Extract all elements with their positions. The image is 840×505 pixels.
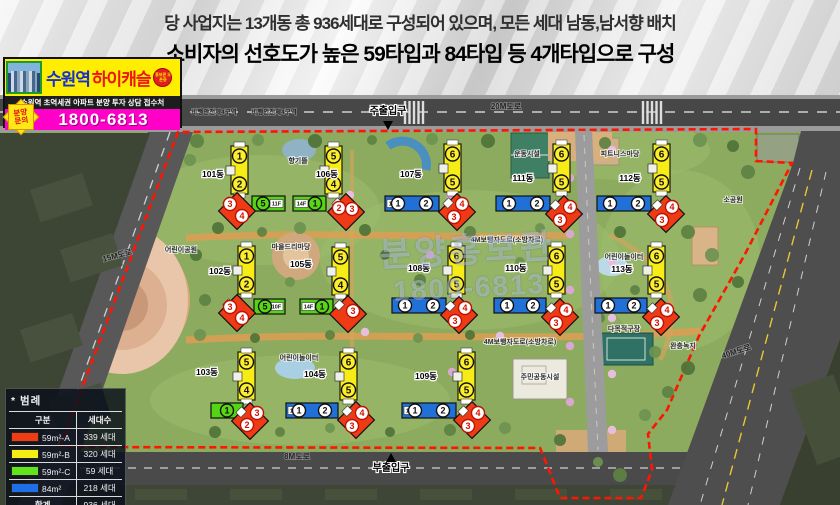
tower-connector — [643, 266, 652, 275]
legend-row: 구분세대수 — [9, 412, 122, 429]
unit-number: 1 — [506, 199, 511, 209]
cherry-tree — [361, 328, 369, 336]
tree — [308, 134, 322, 148]
unit-number: 3 — [349, 204, 354, 214]
floor-label: 11F — [272, 202, 282, 208]
tree — [465, 330, 475, 340]
unit-number: 2 — [322, 406, 327, 416]
facility-label: 소공원 — [723, 195, 742, 204]
tree — [385, 427, 395, 437]
cherry-tree — [566, 286, 574, 294]
unit-number: 5 — [262, 302, 267, 312]
floor-tag — [241, 242, 252, 247]
floor-tag — [343, 348, 354, 353]
unit-number: 4 — [239, 313, 244, 323]
legend-title: * 범례 — [11, 393, 122, 408]
satellite-building — [325, 489, 377, 500]
tree — [681, 225, 695, 239]
tree — [693, 288, 707, 302]
tree — [535, 223, 545, 233]
building-photo — [6, 61, 42, 94]
unit-number: 5 — [454, 280, 460, 291]
unit-number: 3 — [465, 421, 470, 431]
unit-number: 2 — [244, 280, 250, 291]
unit-number: 1 — [296, 406, 301, 416]
floor-tag — [241, 293, 252, 298]
tree — [613, 468, 627, 482]
cherry-tree — [608, 314, 616, 322]
unit-number: 1 — [244, 252, 250, 263]
legend: * 범례 구분세대수59m²-A339 세대59m²-B320 세대59m²-C… — [5, 388, 126, 505]
road-label: 20M도로 — [491, 102, 522, 111]
tree — [359, 224, 371, 236]
floor-tag — [328, 193, 339, 198]
building-label-101동: 101동 — [202, 169, 224, 179]
site-plan-map: 1211F534101동5414F123106동6514F1243107동651… — [0, 95, 840, 505]
legend-row: 84m²218 세대 — [9, 480, 122, 497]
tree — [413, 333, 423, 343]
tree — [199, 294, 211, 306]
unit-number: 3 — [350, 306, 355, 316]
road-label: 비행안전제4구역 — [191, 107, 236, 116]
unit-number: 3 — [349, 421, 354, 431]
legend-row: 59m²-B320 세대 — [9, 446, 122, 463]
unit-number: 6 — [454, 252, 460, 263]
unit-number: 5 — [464, 386, 470, 397]
building-label-111동: 111동 — [512, 173, 533, 183]
building-label-112동: 112동 — [619, 173, 641, 183]
unit-number: 3 — [659, 215, 664, 225]
crosswalk-stripe — [422, 101, 424, 124]
tree — [209, 426, 221, 438]
unit-number: 5 — [659, 178, 665, 189]
unit-number: 6 — [450, 150, 456, 161]
floor-label: 14F — [297, 202, 307, 208]
unit-number: 5 — [346, 386, 352, 397]
tree — [649, 346, 661, 358]
building-label-110동: 110동 — [505, 263, 527, 273]
facility-label: 어린이공원 — [165, 245, 197, 254]
building-label-106동: 106동 — [316, 169, 338, 179]
open-badge: 홍보관 오픈중 — [153, 68, 172, 87]
tree — [294, 222, 306, 234]
floor-label: 10F — [272, 305, 282, 311]
map-canvas: 1211F534101동5414F123106동6514F1243107동651… — [0, 95, 840, 505]
crosswalk-stripe — [655, 101, 657, 124]
crosswalk-stripe — [660, 101, 662, 124]
floor-tag — [335, 243, 346, 248]
crosswalk-stripe — [646, 101, 648, 124]
tree — [444, 424, 456, 436]
unit-number: 2 — [237, 180, 243, 191]
road-label: 비행안전제4구역 — [251, 107, 296, 116]
floor-tag — [551, 293, 562, 298]
crosswalk-stripe — [413, 101, 415, 124]
floor-tag — [241, 348, 252, 353]
cherry-tree — [608, 370, 616, 378]
unit-number: 4 — [239, 211, 244, 221]
floor-tag — [556, 140, 567, 145]
facility-label: 피트니스마당 — [601, 149, 640, 158]
tree — [593, 457, 603, 467]
unit-number: 5 — [554, 280, 560, 291]
tree — [614, 226, 626, 238]
tree — [252, 134, 264, 146]
sub-entrance-label: 부출입구 — [373, 461, 410, 474]
unit-number: 6 — [554, 252, 560, 263]
unit-number: 3 — [451, 212, 456, 222]
floor-label: 14F — [304, 305, 314, 311]
unit-number: 6 — [464, 358, 470, 369]
floor-tag — [451, 242, 462, 247]
unit-number: 1 — [237, 152, 243, 163]
tree — [727, 140, 739, 152]
legend-row: 합계936 세대 — [9, 497, 122, 505]
unit-number: 2 — [534, 199, 539, 209]
unit-number: 4 — [567, 202, 572, 212]
tree — [250, 333, 260, 343]
unit-number: 4 — [459, 199, 464, 209]
tree — [693, 133, 707, 147]
tree — [426, 133, 438, 145]
legend-table: 구분세대수59m²-A339 세대59m²-B320 세대59m²-C59 세대… — [9, 411, 122, 505]
tower-connector — [548, 164, 557, 173]
tower-connector — [439, 164, 448, 173]
facility-label: 어린이놀이터 — [605, 252, 644, 261]
floor-tag — [234, 142, 245, 147]
unit-number: 2 — [530, 301, 535, 311]
crosswalk-stripe — [642, 101, 644, 124]
satellite-building — [515, 489, 567, 500]
floor-tag — [343, 399, 354, 404]
cherry-tree — [566, 230, 574, 238]
satellite-building — [420, 489, 472, 500]
tree — [414, 274, 426, 286]
unit-number: 3 — [227, 199, 232, 209]
unit-number: 3 — [254, 408, 259, 418]
unit-number: 1 — [224, 406, 229, 416]
unit-number: 3 — [557, 215, 562, 225]
crosswalk-stripe — [651, 101, 653, 124]
logo-box[interactable]: 수원역 하이캐슬 홍보관 오픈중 수원역 초역세권 아파트 분양 투자 상담 접… — [3, 57, 182, 128]
building-label-113동: 113동 — [611, 264, 633, 274]
unit-number: 4 — [664, 305, 669, 315]
facility-label: 주민공동시설 — [521, 372, 560, 381]
unit-number: 3 — [654, 318, 659, 328]
tree — [190, 134, 204, 148]
tower-connector — [443, 266, 452, 275]
unit-number: 4 — [359, 408, 364, 418]
unit-number: 6 — [346, 358, 352, 369]
floor-tag — [651, 293, 662, 298]
facility-label: 4M보행자도로(소방차로) — [484, 337, 556, 346]
tree — [184, 154, 196, 166]
unit-number: 5 — [260, 199, 265, 209]
gray-pad — [757, 134, 799, 162]
unit-number: 4 — [669, 202, 674, 212]
floor-tag — [651, 242, 662, 247]
tower-connector — [226, 166, 235, 175]
building-label-109동: 109동 — [415, 371, 437, 381]
unit-number: 5 — [331, 152, 337, 163]
unit-number: 1 — [607, 199, 612, 209]
brand-name: 하이캐슬 — [92, 65, 151, 90]
building-label-103동: 103동 — [196, 367, 218, 377]
cherry-tree — [426, 251, 434, 259]
tree — [481, 134, 495, 148]
tree — [257, 227, 267, 237]
unit-number: 6 — [659, 150, 665, 161]
facility-label: 향기뜰 — [288, 156, 308, 165]
floor-tag — [556, 191, 567, 196]
inquiry-badge: 분양 문의 — [6, 102, 36, 132]
unit-number: 1 — [504, 301, 509, 311]
facility-label: 마을드리마당 — [272, 242, 311, 251]
unit-number: 1 — [412, 406, 417, 416]
brand-location: 수원역 — [46, 65, 90, 90]
tower-connector — [648, 164, 657, 173]
unit-number: 3 — [553, 318, 558, 328]
unit-number: 4 — [475, 408, 480, 418]
phone-number: 1800-6813 — [58, 110, 148, 130]
facility-label: 다목적구장 — [608, 324, 641, 333]
cherry-tree — [566, 398, 574, 406]
tower-connector — [453, 372, 462, 381]
unit-number: 2 — [631, 301, 636, 311]
unit-number: 2 — [244, 420, 249, 430]
unit-number: 1 — [319, 302, 324, 312]
tree — [275, 427, 285, 437]
tree — [681, 361, 695, 375]
unit-number: 2 — [440, 406, 445, 416]
unit-number: 5 — [559, 178, 565, 189]
road-label: 8M도로 — [284, 452, 310, 461]
unit-number: 2 — [430, 301, 435, 311]
tree — [630, 285, 640, 295]
tree — [499, 422, 511, 434]
unit-number: 3 — [452, 316, 457, 326]
floor-tag — [447, 140, 458, 145]
unit-number: 2 — [336, 203, 341, 213]
satellite-building — [135, 489, 187, 500]
main-entrance-label: 주출입구 — [370, 104, 407, 117]
unit-number: 5 — [244, 358, 250, 369]
unit-number: 3 — [227, 302, 232, 312]
crosswalk-stripe — [408, 101, 410, 124]
logo-phone-row: 분양 문의 1800-6813 — [5, 109, 180, 130]
unit-number: 1 — [402, 301, 407, 311]
unit-number: 5 — [450, 178, 456, 189]
tower-connector — [233, 266, 242, 275]
header-line-1: 당 사업지는 13개동 총 936세대로 구성되어 있으며, 모든 세대 남동,… — [0, 9, 840, 34]
logo-top-row: 수원역 하이캐슬 홍보관 오픈중 — [5, 59, 180, 96]
building-label-105동: 105동 — [290, 259, 312, 269]
floor-tag — [656, 140, 667, 145]
tree — [367, 135, 377, 145]
tree — [662, 386, 674, 398]
unit-number: 6 — [559, 150, 565, 161]
facility-label: 4M보행자도로(소방차로) — [471, 235, 543, 244]
tree — [705, 248, 719, 262]
unit-number: 2 — [423, 199, 428, 209]
unit-number: 4 — [331, 180, 337, 191]
legend-row: 59m²-A339 세대 — [9, 429, 122, 446]
tree — [380, 250, 390, 260]
tower-connector — [233, 372, 242, 381]
unit-number: 6 — [654, 252, 660, 263]
cherry-tree — [608, 426, 616, 434]
floor-tag — [461, 348, 472, 353]
tree — [285, 277, 295, 287]
unit-number: 2 — [635, 199, 640, 209]
crosswalk-stripe — [417, 101, 419, 124]
tree — [554, 434, 566, 446]
building-label-108동: 108동 — [408, 263, 430, 273]
building-label-104동: 104동 — [304, 369, 326, 379]
unit-number: 1 — [312, 199, 317, 209]
unit-number: 4 — [462, 303, 467, 313]
unit-number: 4 — [244, 386, 250, 397]
floor-tag — [551, 242, 562, 247]
tree — [325, 330, 335, 340]
floor-tag — [335, 294, 346, 299]
tree — [325, 423, 335, 433]
unit-number: 1 — [605, 301, 610, 311]
legend-row: 59m²-C59 세대 — [9, 463, 122, 480]
logo-title: 수원역 하이캐슬 홍보관 오픈중 — [46, 65, 172, 90]
unit-number: 4 — [563, 305, 568, 315]
tree — [194, 329, 206, 341]
tree — [639, 409, 651, 421]
facility-label: 어린이놀이터 — [280, 353, 319, 362]
satellite-building — [230, 489, 282, 500]
facility-label: 완충녹지 — [670, 341, 696, 350]
tree — [732, 276, 744, 288]
building-label-102동: 102동 — [209, 266, 231, 276]
tower-connector — [543, 266, 552, 275]
tree — [741, 165, 755, 179]
tree — [212, 222, 224, 234]
cherry-tree — [566, 342, 574, 350]
facility-label: 운동시설 — [514, 149, 540, 158]
unit-number: 5 — [654, 280, 660, 291]
tower-connector — [335, 372, 344, 381]
floor-tag — [328, 142, 339, 147]
tower-connector — [327, 267, 336, 276]
screenshot-root: 당 사업지는 13개동 총 936세대로 구성되어 있으며, 모든 세대 남동,… — [0, 0, 840, 505]
floor-tag — [656, 191, 667, 196]
unit-number: 1 — [395, 199, 400, 209]
unit-number: 5 — [338, 253, 344, 264]
unit-number: 4 — [338, 281, 344, 292]
building-label-107동: 107동 — [400, 169, 422, 179]
